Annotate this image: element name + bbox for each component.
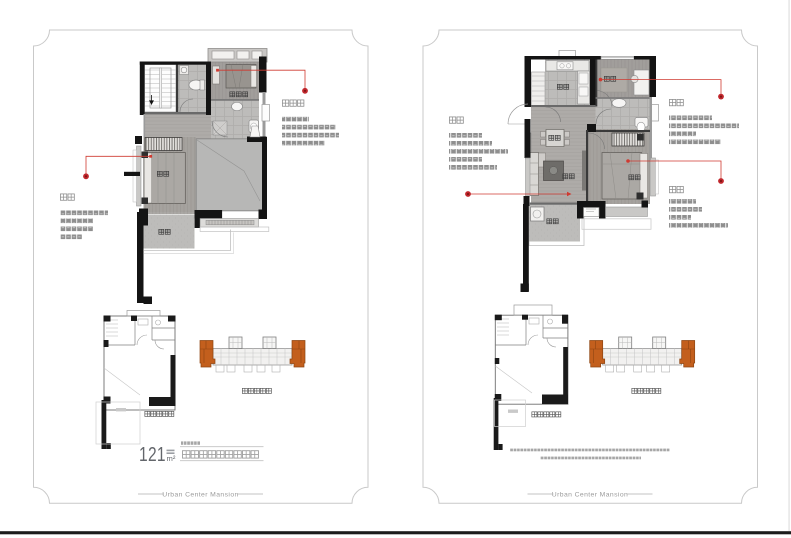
svg-text:Urban Center Mansion: Urban Center Mansion xyxy=(162,492,238,499)
svg-text:121: 121 xyxy=(139,443,166,466)
svg-text:Urban Center Mansion: Urban Center Mansion xyxy=(552,492,628,499)
svg-text:m²: m² xyxy=(167,454,176,463)
